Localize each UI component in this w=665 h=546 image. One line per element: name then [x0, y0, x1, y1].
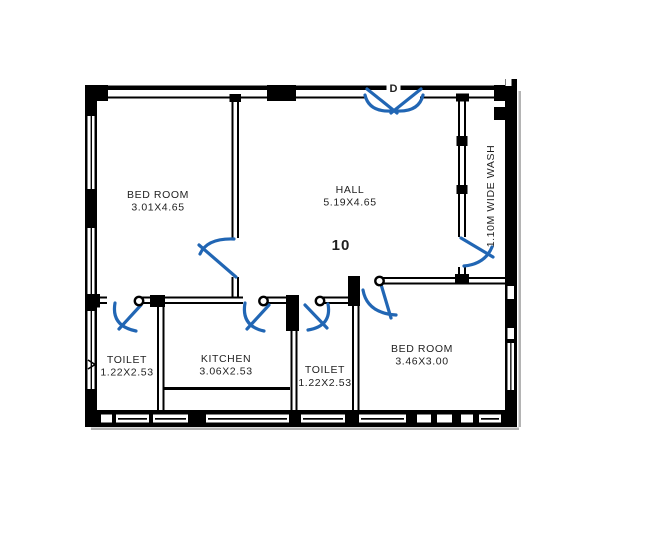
kitchen-toilet2-wall [291, 331, 293, 410]
room-label-toilet-1: TOILET 1.22X2.53 [100, 354, 153, 379]
wall-junction-block [230, 94, 242, 102]
door-arc [363, 290, 396, 315]
toilet2-door [305, 304, 329, 330]
door-leaf [247, 305, 269, 329]
window [417, 415, 431, 423]
window-mullion [91, 311, 92, 389]
column [286, 295, 299, 331]
toilet1-kitchen-wall [157, 303, 159, 410]
window-mullion [361, 418, 404, 420]
hall-kitchen-wall [321, 302, 352, 304]
hall-wash-wall [458, 101, 460, 237]
toilet1-kitchen-wall [163, 303, 165, 410]
wall-tick [457, 136, 468, 146]
wall-shadow-bottom [91, 428, 519, 431]
kitchen-counter [163, 387, 290, 390]
toilet1-door [114, 303, 141, 331]
window [508, 286, 515, 299]
window [437, 415, 452, 423]
bedroom2-top-wall [377, 277, 505, 279]
floor-plan-canvas: BED ROOM 3.01X4.65 HALL 5.19X4.65 10 TOI… [0, 0, 665, 546]
door-arc [114, 303, 136, 331]
door-hinge-marker [375, 277, 383, 285]
bedroom1-hall-wall [237, 277, 239, 298]
unit-number: 10 [332, 237, 351, 254]
room-label-bedroom-2: BED ROOM 3.46X3.00 [391, 343, 453, 368]
room-name: BED ROOM [391, 343, 453, 355]
hall-kitchen-wall [97, 302, 107, 304]
door-hinge-marker [135, 297, 143, 305]
door-hinge-marker [316, 297, 324, 305]
window-mullion [510, 343, 511, 390]
hall-wash-wall [464, 101, 466, 237]
window [101, 415, 112, 423]
room-name: TOILET [107, 354, 147, 366]
entrance-door-label: D [390, 83, 398, 95]
window-mullion [91, 116, 92, 189]
bedroom1-hall-wall [232, 277, 234, 298]
room-name: KITCHEN [201, 353, 251, 365]
bedroom1-hall-wall [237, 101, 239, 238]
door-hinge-marker [259, 297, 267, 305]
wash-annotation: 1.10M WIDE WASH [485, 145, 497, 248]
window-mullion [91, 228, 92, 294]
wall-junction-block [267, 85, 296, 101]
room-dims: 1.22X2.53 [298, 377, 351, 389]
bedroom1-door [199, 239, 236, 277]
wall-notch [506, 79, 512, 86]
top-wall-outer-line [85, 86, 517, 91]
room-dims: 5.19X4.65 [323, 197, 376, 209]
window-mullion [118, 418, 147, 420]
window [461, 415, 473, 423]
room-dims: 1.22X2.53 [100, 367, 153, 379]
top-wall-inner-line [468, 97, 498, 99]
window-mullion [155, 418, 186, 420]
wall-junction-block [456, 94, 469, 102]
wall-tick [457, 185, 468, 194]
kitchen-toilet2-wall [296, 331, 298, 410]
bedroom1-hall-wall [232, 101, 234, 238]
room-name: BED ROOM [127, 189, 189, 201]
door-leaf [119, 305, 141, 329]
door-leaf [199, 245, 236, 277]
top-wall-inner-line [420, 97, 457, 99]
wall-junction-block [85, 294, 100, 308]
door-leaf [305, 305, 327, 328]
bedroom2-door [363, 281, 396, 318]
kitchen-door [244, 303, 269, 331]
bedroom2-top-wall [377, 283, 505, 285]
floor-plan: BED ROOM 3.01X4.65 HALL 5.19X4.65 10 TOI… [0, 0, 665, 546]
room-dims: 3.46X3.00 [395, 356, 448, 368]
hall-kitchen-wall [321, 297, 352, 299]
room-dims: 3.06X2.53 [199, 366, 252, 378]
wall-step-block [494, 107, 506, 120]
room-label-bedroom-1: BED ROOM 3.01X4.65 [127, 189, 189, 214]
hall-kitchen-wall [265, 297, 287, 299]
window [508, 328, 515, 339]
room-label-hall: HALL 5.19X4.65 [323, 184, 376, 209]
bedroom2-left-wall [352, 283, 354, 410]
window-mullion [208, 418, 287, 420]
room-label-toilet-2: TOILET 1.22X2.53 [298, 364, 351, 389]
wall-shadow-right [519, 91, 522, 427]
room-name: HALL [336, 184, 365, 196]
window-mullion [481, 418, 499, 420]
window-mullion [303, 418, 343, 420]
hall-kitchen-wall [97, 297, 107, 299]
room-dims: 3.01X4.65 [131, 202, 184, 214]
room-label-kitchen: KITCHEN 3.06X2.53 [199, 353, 252, 378]
bedroom2-left-wall [358, 283, 360, 410]
room-name: TOILET [305, 364, 345, 376]
